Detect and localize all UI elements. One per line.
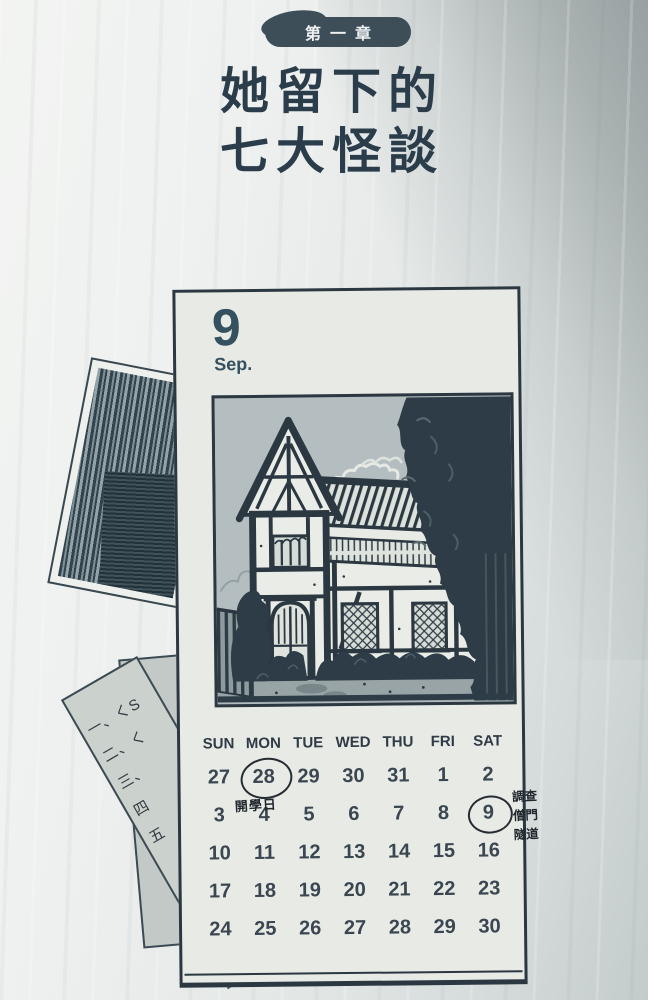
date-cell: 28 (377, 908, 422, 946)
day-header: WED (331, 727, 376, 757)
date-cell: 8 (421, 794, 466, 832)
date-cell: 21 (377, 870, 422, 908)
date-cell: 2 (465, 755, 510, 793)
month-abbreviation: Sep. (214, 354, 252, 375)
date-cell: 15 (421, 832, 466, 870)
house-illustration (214, 395, 513, 704)
date-cell: 11 (242, 834, 287, 872)
day-header: SAT (465, 725, 510, 755)
school-day-note: 開學日 (234, 794, 277, 816)
date-cell: 12 (287, 833, 332, 871)
calendar-grid: SUN MON TUE WED THU FRI SAT 27 28 29 30 … (196, 725, 512, 948)
day-header: SUN (196, 728, 241, 758)
investigation-note-line: 僧門 (512, 805, 559, 826)
title-line-2: 七大怪談 (16, 122, 648, 182)
date-cell: 14 (376, 832, 421, 870)
date-cell: 7 (376, 794, 421, 832)
card-inner-border-line (185, 970, 523, 976)
date-cell: 29 (286, 757, 331, 795)
date-cell: 19 (287, 871, 332, 909)
date-cell: 26 (288, 909, 333, 947)
title-line-1: 她留下的 (16, 62, 648, 122)
day-header: FRI (420, 726, 465, 756)
date-cell: 27 (332, 909, 377, 947)
date-cell: 27 (196, 758, 241, 796)
date-cell: 17 (197, 872, 242, 910)
date-cell: 16 (466, 831, 511, 869)
day-header: TUE (286, 727, 331, 757)
chapter-badge-label: 第一章 (296, 20, 380, 44)
date-cell: 30 (331, 757, 376, 795)
date-cell: 18 (242, 872, 287, 910)
date-cell: 22 (422, 870, 467, 908)
day-header: THU (375, 726, 420, 756)
date-cell: 30 (467, 907, 512, 945)
date-cell: 1 (421, 756, 466, 794)
month-number: 9 (211, 298, 241, 358)
day-header: MON (241, 728, 286, 758)
investigation-note-line: 隧道 (513, 824, 560, 845)
date-cell: 6 (331, 795, 376, 833)
chapter-title: 她留下的 七大怪談 (0, 62, 648, 182)
date-cell: 29 (422, 908, 467, 946)
date-cell: 25 (243, 910, 288, 948)
calendar-card: 9 Sep. (172, 286, 527, 988)
date-cell: 23 (467, 869, 512, 907)
investigation-note: 調查 僧門 隧道 (512, 786, 561, 844)
date-cell: 10 (197, 834, 242, 872)
house-illustration-frame (211, 392, 516, 707)
date-cell: 20 (332, 871, 377, 909)
date-cell: 24 (198, 910, 243, 948)
date-cell: 5 (286, 795, 331, 833)
investigation-note-line: 調查 (512, 786, 559, 807)
date-cell: 31 (376, 756, 421, 794)
date-cell: 13 (332, 833, 377, 871)
chapter-badge: 第一章 (265, 17, 411, 47)
